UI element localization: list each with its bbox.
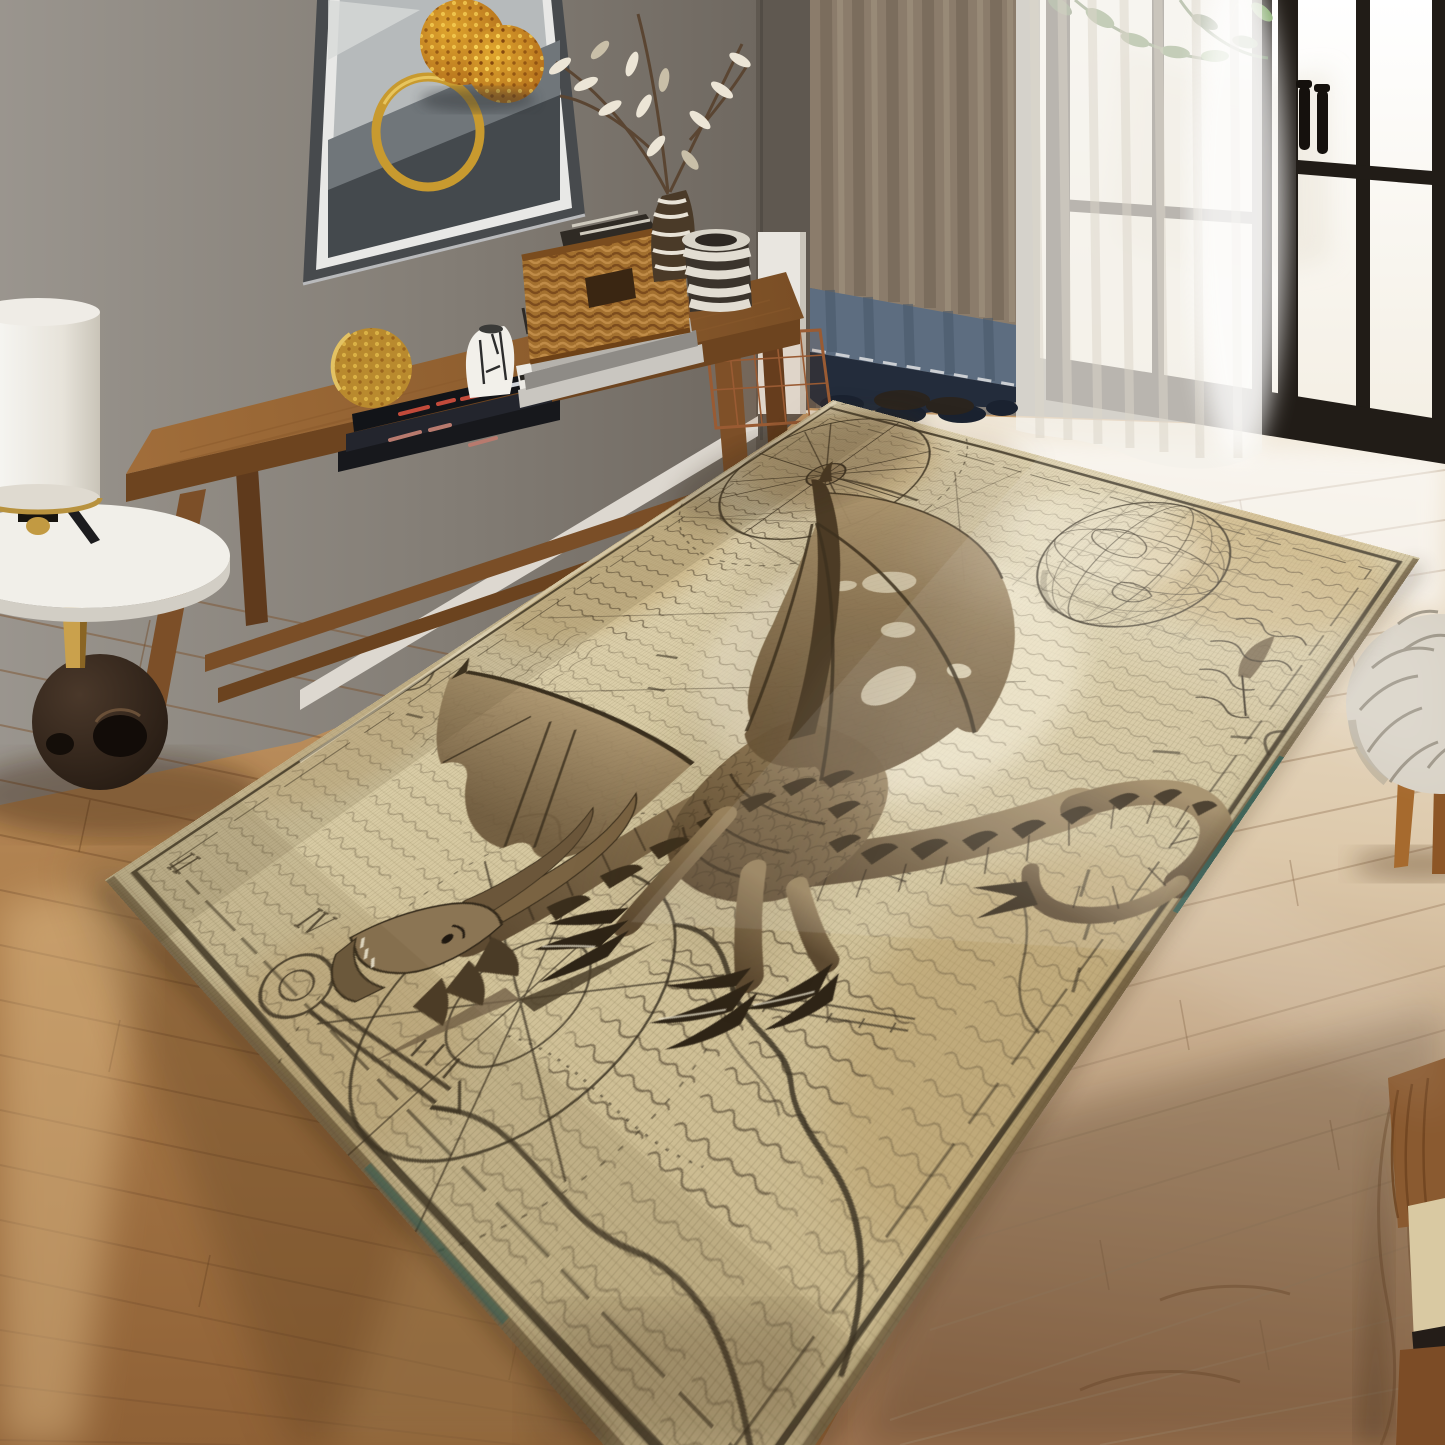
french-doors xyxy=(1040,0,1445,464)
sheer-curtain xyxy=(1016,0,1286,469)
banded-round-box xyxy=(682,229,752,312)
rug-art: II IV xyxy=(105,400,1420,1445)
slippers xyxy=(874,390,974,415)
drape-curtain xyxy=(810,0,1018,424)
wall-artwork xyxy=(303,0,585,284)
plant-sprigs xyxy=(1045,0,1276,62)
striped-vase-plant xyxy=(546,14,752,282)
dragon-rug: II IV xyxy=(105,400,1420,1445)
brush-cup xyxy=(516,306,554,400)
black-books xyxy=(338,370,560,472)
drum-lamp xyxy=(0,298,100,535)
door-handles xyxy=(1296,80,1330,154)
black-pen xyxy=(60,499,100,544)
wicker-basket xyxy=(522,212,690,362)
side-table-lamp xyxy=(0,298,265,837)
gold-disc xyxy=(332,328,412,408)
brush-stroke-vase xyxy=(466,325,514,399)
living-room-scene: II IV xyxy=(0,0,1445,1445)
knitted-pouf xyxy=(1346,611,1445,880)
golden-spheres xyxy=(420,0,544,112)
chair-corner xyxy=(1356,1058,1445,1445)
gold-ring xyxy=(376,77,480,187)
magazine-stack xyxy=(518,308,704,408)
artwork-abstract-shapes xyxy=(328,0,560,258)
door-grid xyxy=(1046,0,1445,464)
